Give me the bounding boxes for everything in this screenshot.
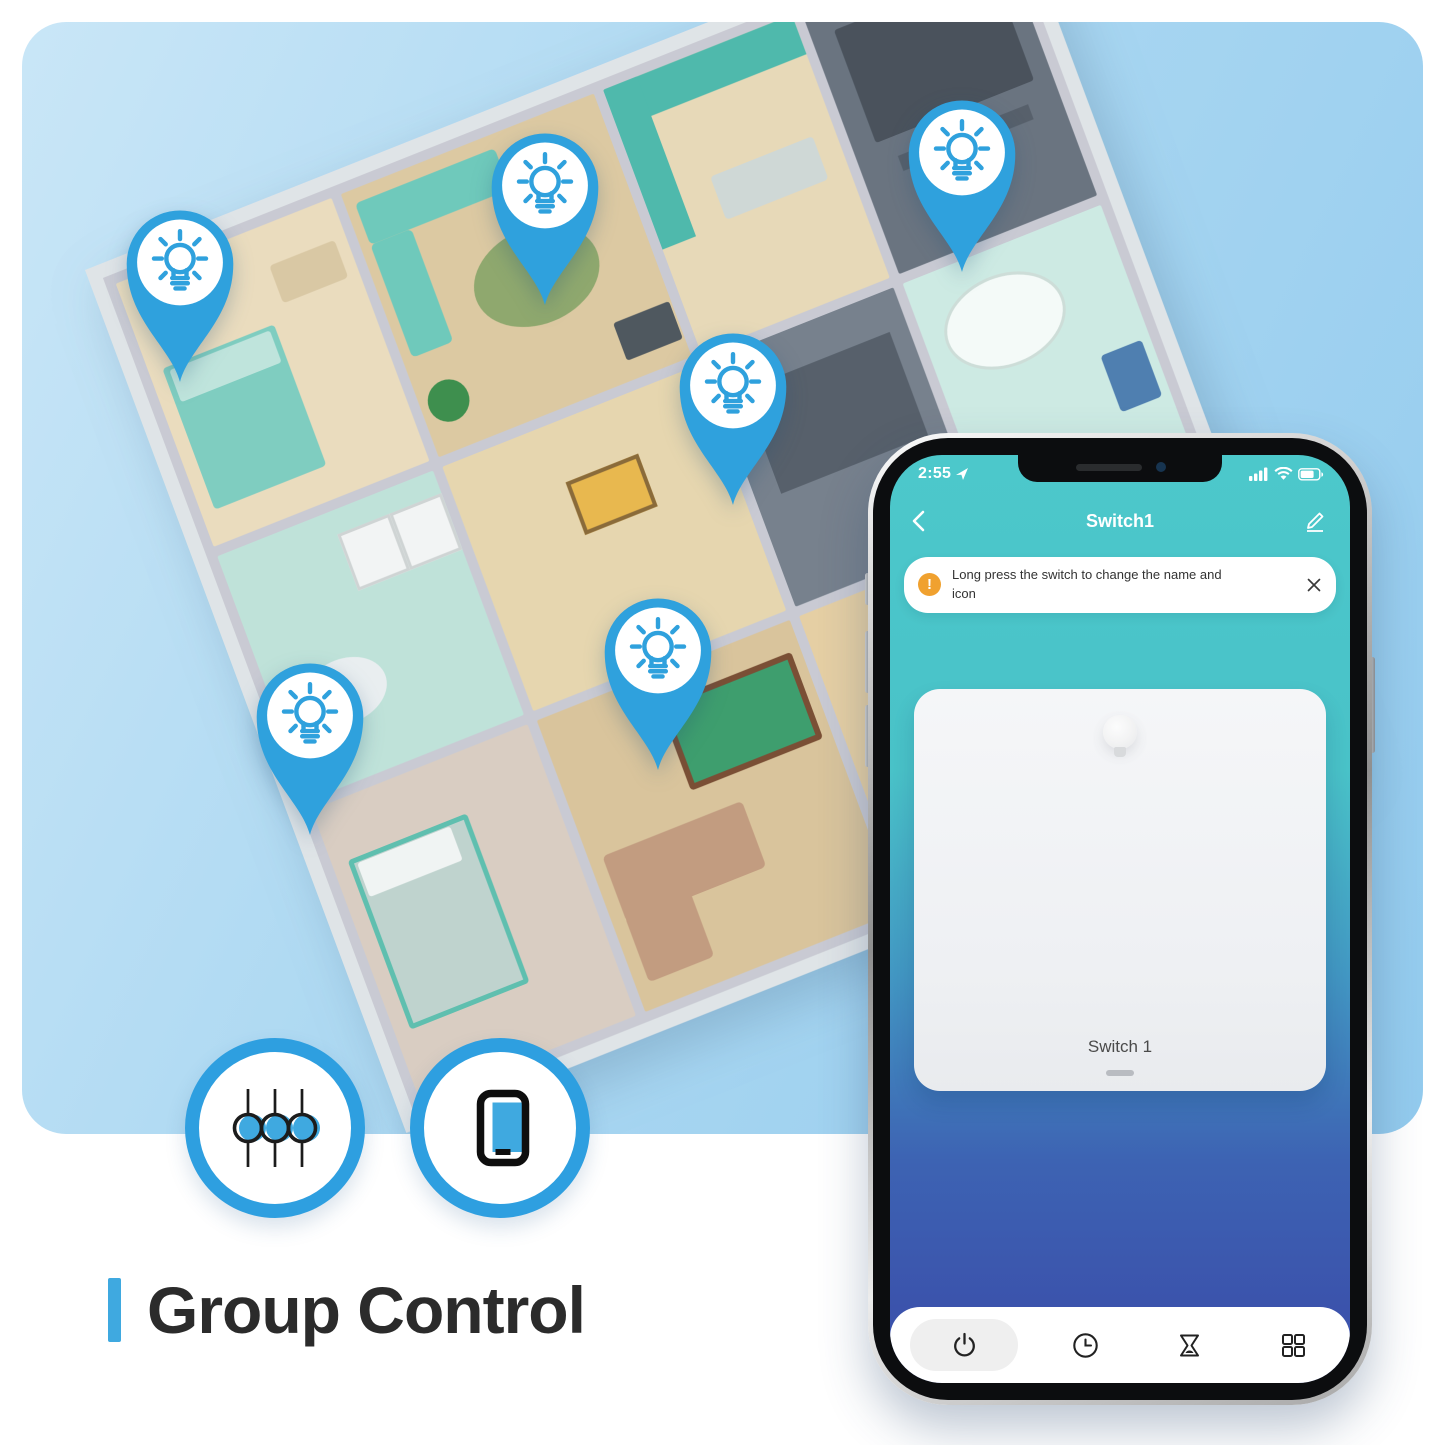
caption-accent-bar — [108, 1278, 121, 1342]
battery-icon — [1298, 468, 1324, 481]
edit-button[interactable] — [1302, 508, 1328, 534]
switch-card[interactable]: Switch 1 — [914, 689, 1326, 1091]
notification-banner: ! Long press the switch to change the na… — [904, 557, 1336, 613]
light-bulb-pin — [115, 201, 245, 385]
close-icon[interactable] — [1306, 577, 1322, 593]
switch-label: Switch 1 — [914, 1037, 1326, 1057]
wifi-icon — [1274, 467, 1293, 481]
caption-text: Group Control — [147, 1272, 585, 1348]
alert-icon: ! — [918, 573, 941, 596]
clock-icon — [1072, 1332, 1099, 1359]
caption: Group Control — [108, 1272, 585, 1348]
more-tab[interactable] — [1256, 1319, 1330, 1371]
bulb-image — [1100, 715, 1140, 771]
front-camera — [1156, 462, 1166, 472]
light-bulb-pin — [245, 654, 375, 838]
speaker-slot — [1076, 464, 1142, 471]
light-bulb-pin — [480, 124, 610, 308]
hourglass-icon — [1176, 1332, 1203, 1359]
banner-text: Long press the switch to change the name… — [952, 566, 1238, 604]
group-badge — [185, 1038, 365, 1218]
app-badge — [410, 1038, 590, 1218]
app-header: Switch1 — [890, 507, 1350, 535]
marketing-image: { "scene": { "caption": "Group Control",… — [0, 0, 1445, 1445]
notch — [1018, 455, 1222, 482]
phone-mockup: 2:55 — [868, 433, 1372, 1405]
back-button[interactable] — [912, 510, 925, 532]
light-bulb-pin — [593, 589, 723, 773]
grid-icon — [1280, 1332, 1307, 1359]
timer-tab[interactable] — [1152, 1319, 1226, 1371]
sliders-icon — [227, 1080, 323, 1176]
schedule-tab[interactable] — [1048, 1319, 1122, 1371]
bottom-toolbar — [890, 1307, 1350, 1383]
app-screen: 2:55 — [890, 455, 1350, 1383]
page-title: Switch1 — [890, 511, 1350, 532]
light-bulb-pin — [668, 324, 798, 508]
location-arrow-icon — [955, 467, 969, 481]
light-bulb-pin — [897, 91, 1027, 275]
signal-bars-icon — [1249, 467, 1269, 481]
tablet-icon — [452, 1080, 548, 1176]
power-icon — [951, 1332, 978, 1359]
status-time: 2:55 — [918, 465, 951, 483]
power-tab[interactable] — [910, 1319, 1018, 1371]
switch-pill — [1106, 1070, 1134, 1076]
